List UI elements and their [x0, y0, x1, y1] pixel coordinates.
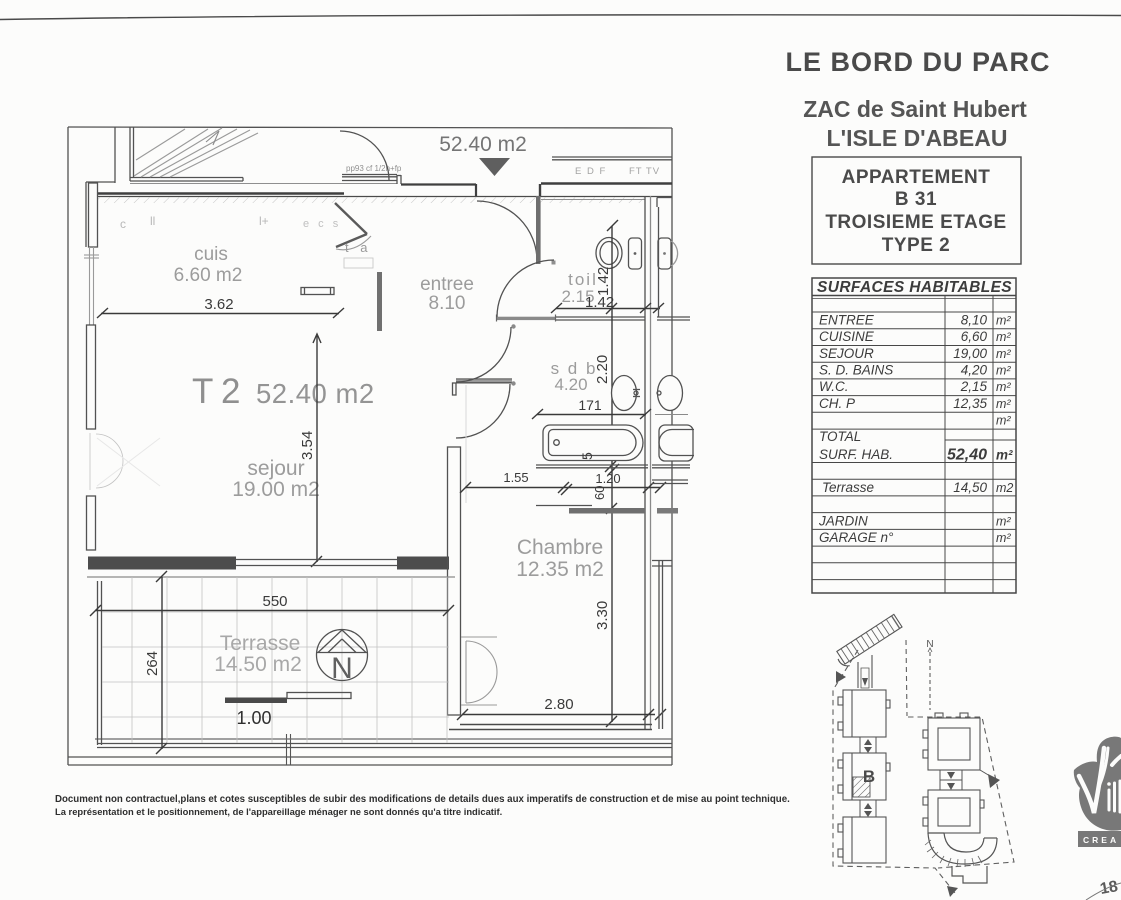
svg-text:2.20: 2.20 — [594, 355, 611, 384]
svg-text:E D F: E D F — [575, 166, 607, 177]
svg-text:CUISINE: CUISINE — [819, 329, 875, 344]
svg-text:m²: m² — [996, 397, 1011, 411]
svg-text:m²: m² — [996, 314, 1011, 328]
svg-text:264: 264 — [144, 651, 161, 676]
svg-text:entree: entree — [420, 274, 474, 295]
svg-text:19,00: 19,00 — [953, 346, 987, 361]
svg-text:550: 550 — [262, 593, 287, 610]
svg-text:W.C.: W.C. — [819, 379, 849, 394]
svg-text:m²: m² — [996, 414, 1011, 428]
svg-text:1.00: 1.00 — [236, 708, 271, 728]
svg-text:3.54: 3.54 — [299, 431, 316, 460]
svg-text:SURFACES HABITABLES: SURFACES HABITABLES — [817, 279, 1012, 296]
svg-text:Terrasse: Terrasse — [822, 480, 874, 495]
svg-text:2: 2 — [221, 372, 240, 411]
svg-text:m²: m² — [996, 515, 1011, 529]
svg-text:ENTREE: ENTREE — [819, 313, 875, 328]
svg-text:c: c — [120, 217, 126, 231]
svg-text:CH. P: CH. P — [819, 396, 855, 411]
svg-text:14,50: 14,50 — [953, 480, 987, 495]
svg-text:l+: l+ — [259, 214, 269, 228]
svg-text:JARDIN: JARDIN — [818, 514, 868, 529]
svg-text:SURF. HAB.: SURF. HAB. — [819, 447, 893, 462]
svg-text:5: 5 — [579, 452, 595, 460]
svg-text:e c s: e c s — [303, 218, 341, 230]
svg-text:B 31: B 31 — [895, 189, 937, 210]
svg-text:m²: m² — [996, 330, 1011, 344]
svg-text:19.00 m2: 19.00 m2 — [232, 478, 320, 501]
svg-text:m²: m² — [996, 448, 1013, 463]
svg-text:ll: ll — [150, 214, 155, 228]
svg-text:L'ISLE D'ABEAU: L'ISLE D'ABEAU — [827, 125, 1008, 151]
svg-text:Document non contractuel,plans: Document non contractuel,plans et cotes … — [55, 794, 790, 805]
svg-text:171: 171 — [578, 397, 602, 413]
svg-text:sejour: sejour — [247, 457, 304, 480]
svg-text:GARAGE n°: GARAGE n° — [819, 530, 894, 545]
svg-text:18: 18 — [1099, 878, 1120, 898]
svg-text:6.60 m2: 6.60 m2 — [174, 265, 243, 286]
svg-text:B: B — [863, 767, 875, 786]
svg-text:52.40 m2: 52.40 m2 — [256, 378, 375, 409]
svg-text:ZAC de Saint Hubert: ZAC de Saint Hubert — [803, 96, 1027, 122]
svg-text:m2: m2 — [996, 481, 1013, 495]
svg-text:1.55: 1.55 — [503, 470, 528, 485]
svg-text:TOTAL: TOTAL — [819, 429, 861, 444]
svg-text:S. D. BAINS: S. D. BAINS — [819, 363, 893, 378]
svg-text:1.42: 1.42 — [595, 267, 612, 296]
svg-text:2.80: 2.80 — [544, 696, 573, 713]
svg-text:Chambre: Chambre — [517, 536, 603, 559]
svg-text:T: T — [192, 372, 213, 411]
svg-text:FT TV: FT TV — [629, 166, 660, 177]
svg-text:12.35 m2: 12.35 m2 — [516, 558, 604, 581]
svg-text:8.10: 8.10 — [429, 293, 466, 314]
svg-text:4,20: 4,20 — [961, 363, 988, 378]
svg-text:m²: m² — [996, 531, 1011, 545]
svg-text:52,40: 52,40 — [947, 447, 987, 464]
svg-text:cuis: cuis — [194, 244, 228, 265]
svg-text:14.50 m2: 14.50 m2 — [214, 653, 302, 676]
svg-text:m²: m² — [996, 364, 1011, 378]
svg-text:SEJOUR: SEJOUR — [819, 346, 874, 361]
svg-text:TROISIEME ETAGE: TROISIEME ETAGE — [825, 212, 1006, 233]
svg-text:Terrasse: Terrasse — [220, 632, 301, 655]
svg-text:APPARTEMENT: APPARTEMENT — [842, 167, 991, 188]
svg-text:12,35: 12,35 — [953, 396, 987, 411]
svg-text:52.40 m2: 52.40 m2 — [439, 133, 527, 156]
svg-text:m²: m² — [996, 347, 1011, 361]
svg-text:CREA: CREA — [1083, 835, 1119, 845]
svg-text:6,60: 6,60 — [961, 329, 988, 344]
svg-text:t a: t a — [345, 240, 371, 255]
svg-text:1.20: 1.20 — [595, 471, 620, 486]
svg-text:2,15: 2,15 — [960, 379, 988, 394]
svg-text:3.30: 3.30 — [594, 601, 611, 630]
svg-text:m²: m² — [996, 380, 1011, 394]
svg-text:3.62: 3.62 — [204, 296, 233, 313]
svg-text:pp93 cf 1/2h+fp: pp93 cf 1/2h+fp — [346, 164, 402, 173]
svg-text:8,10: 8,10 — [961, 313, 988, 328]
svg-text:La représentation et le positi: La représentation et le positionnement, … — [55, 806, 502, 817]
svg-text:LE BORD DU PARC: LE BORD DU PARC — [785, 47, 1050, 77]
svg-text:N: N — [331, 652, 353, 685]
svg-text:TYPE 2: TYPE 2 — [882, 235, 950, 256]
svg-text:4.20: 4.20 — [554, 375, 587, 394]
